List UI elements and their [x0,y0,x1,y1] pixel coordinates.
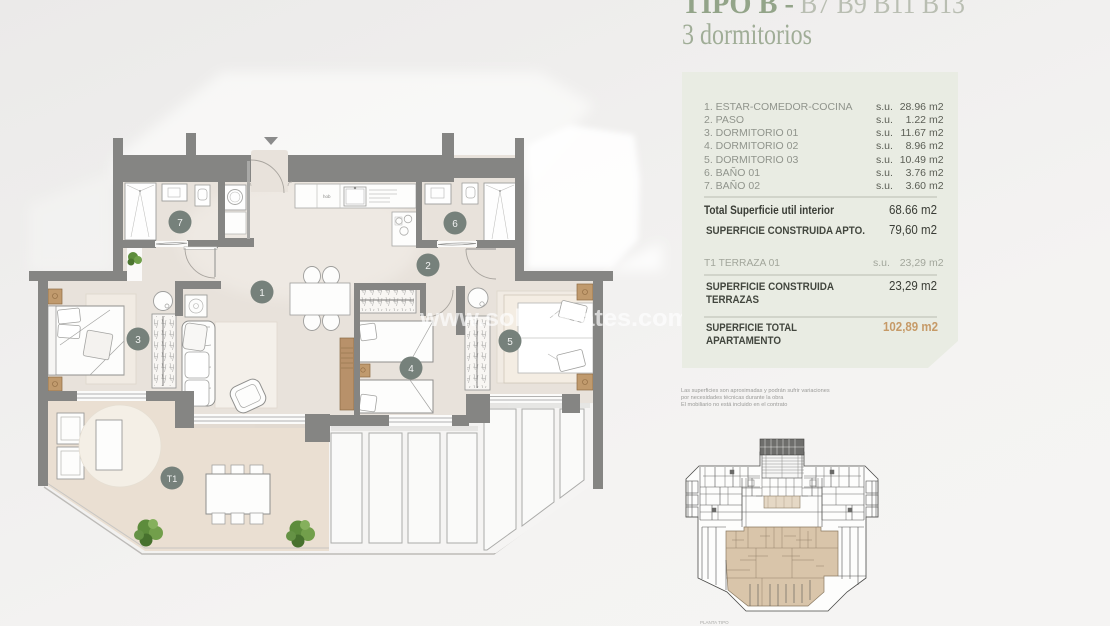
svg-text:PLANTA TIPO: PLANTA TIPO [700,620,729,625]
